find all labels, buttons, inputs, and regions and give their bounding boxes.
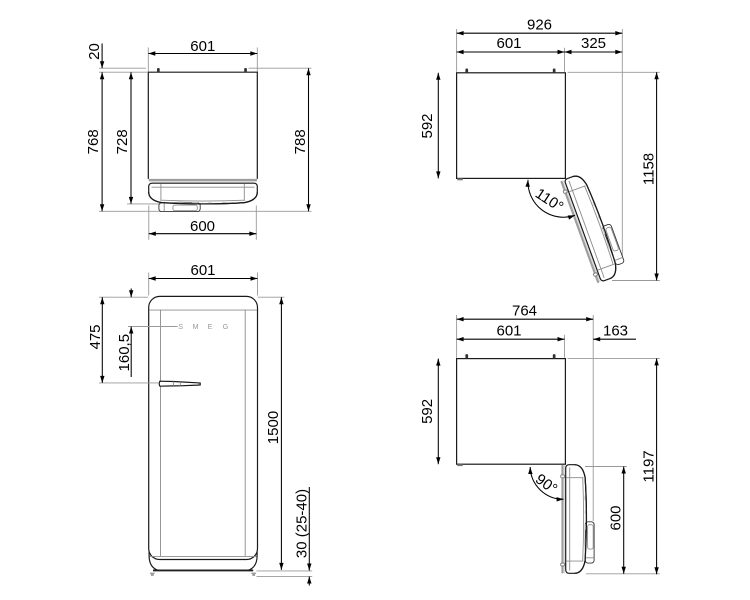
svg-text:592: 592 [419, 399, 436, 424]
svg-text:160,5: 160,5 [116, 334, 133, 372]
svg-text:1197: 1197 [641, 450, 658, 482]
svg-text:30 (25-40): 30 (25-40) [294, 489, 311, 558]
svg-text:592: 592 [419, 113, 436, 138]
svg-text:E: E [208, 322, 213, 331]
svg-text:764: 764 [512, 302, 537, 319]
svg-text:601: 601 [496, 35, 521, 52]
svg-text:601: 601 [190, 262, 215, 279]
svg-text:601: 601 [496, 322, 521, 339]
svg-text:S: S [178, 322, 183, 331]
svg-text:163: 163 [603, 322, 628, 339]
svg-text:1500: 1500 [265, 411, 282, 444]
svg-text:20: 20 [86, 43, 103, 60]
svg-text:M: M [192, 322, 198, 331]
svg-text:788: 788 [292, 129, 309, 154]
svg-text:926: 926 [527, 17, 552, 34]
svg-text:600: 600 [608, 505, 625, 530]
svg-text:1158: 1158 [641, 153, 658, 185]
svg-text:475: 475 [87, 324, 104, 349]
svg-text:728: 728 [114, 129, 131, 154]
svg-text:768: 768 [85, 129, 102, 154]
svg-text:601: 601 [190, 38, 215, 55]
svg-text:325: 325 [581, 35, 606, 52]
svg-text:600: 600 [190, 218, 215, 235]
svg-text:G: G [223, 322, 229, 331]
